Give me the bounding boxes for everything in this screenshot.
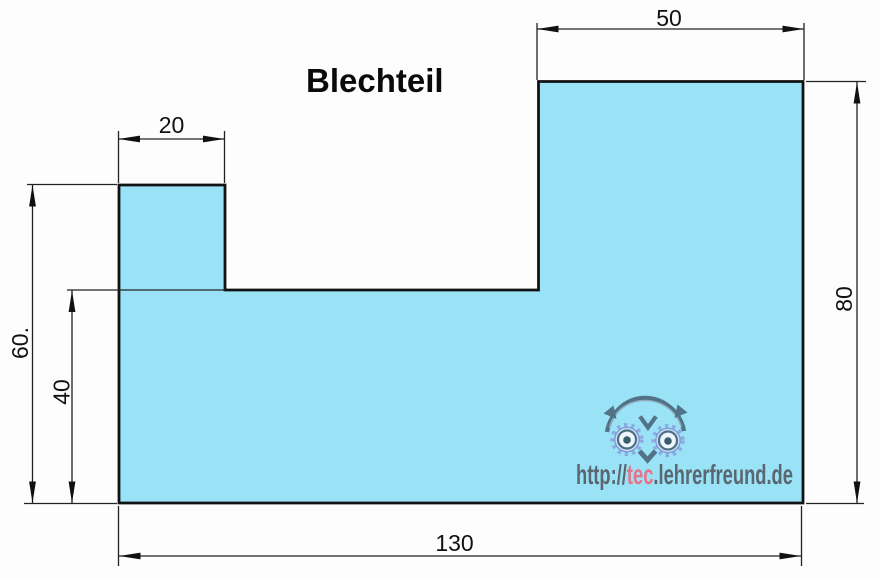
svg-text:http://tec.lehrerfreund.de: http://tec.lehrerfreund.de — [576, 460, 793, 491]
svg-text:80: 80 — [831, 286, 857, 312]
svg-text:50: 50 — [656, 5, 682, 31]
svg-text:40: 40 — [49, 379, 75, 405]
svg-text:20: 20 — [159, 112, 185, 138]
svg-text:Blechteil: Blechteil — [306, 62, 444, 99]
svg-text:130: 130 — [435, 530, 473, 556]
svg-text:60.: 60. — [7, 327, 33, 359]
